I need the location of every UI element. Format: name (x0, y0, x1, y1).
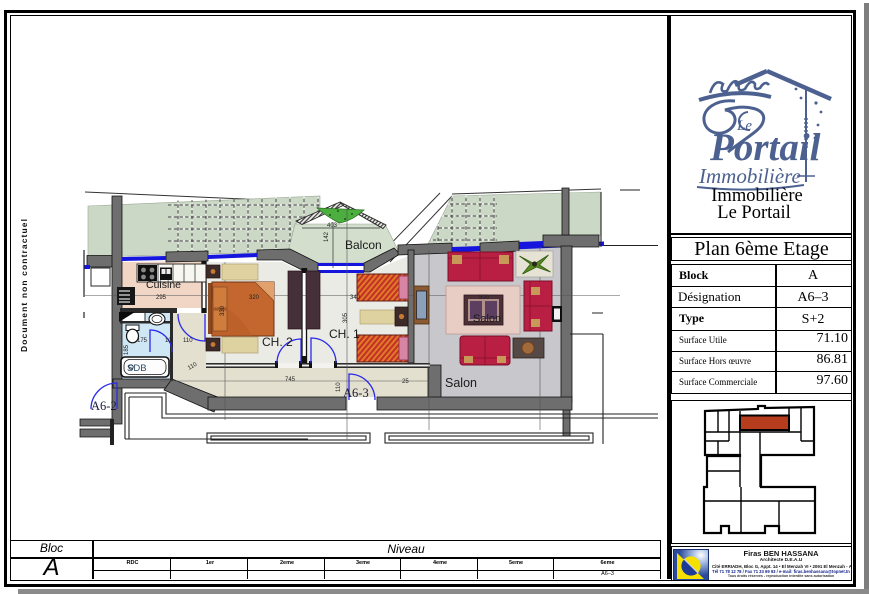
svg-text:Le Portail: Le Portail (717, 203, 790, 223)
svg-text:CH. 1: CH. 1 (329, 327, 360, 341)
svg-text:185: 185 (124, 344, 130, 355)
svg-text:A6-3: A6-3 (343, 386, 369, 400)
svg-text:Balcon: Balcon (345, 238, 382, 252)
svg-text:295: 295 (156, 295, 167, 301)
svg-text:10: 10 (165, 338, 172, 344)
svg-text:Salon: Salon (473, 313, 501, 325)
svg-text:403: 403 (327, 223, 338, 229)
svg-text:25: 25 (402, 379, 409, 385)
svg-text:320: 320 (249, 295, 260, 301)
svg-text:110: 110 (183, 338, 193, 344)
svg-text:A6-2: A6-2 (91, 399, 117, 413)
svg-text:305: 305 (343, 312, 349, 323)
svg-text:745: 745 (285, 377, 296, 383)
svg-text:340: 340 (350, 295, 361, 301)
svg-text:Immobilière: Immobilière (698, 164, 801, 188)
svg-text:175: 175 (137, 338, 148, 344)
svg-text:142: 142 (324, 231, 330, 242)
svg-text:SDB: SDB (127, 363, 147, 374)
svg-text:330: 330 (220, 305, 226, 316)
svg-text:Le: Le (736, 118, 752, 134)
svg-text:Cuisine: Cuisine (146, 279, 181, 291)
svg-text:110: 110 (336, 382, 342, 392)
svg-text:CH. 2: CH. 2 (262, 335, 293, 349)
svg-text:Salon: Salon (445, 376, 477, 390)
svg-text:Portail: Portail (709, 126, 821, 169)
svg-text:500: 500 (479, 295, 490, 301)
